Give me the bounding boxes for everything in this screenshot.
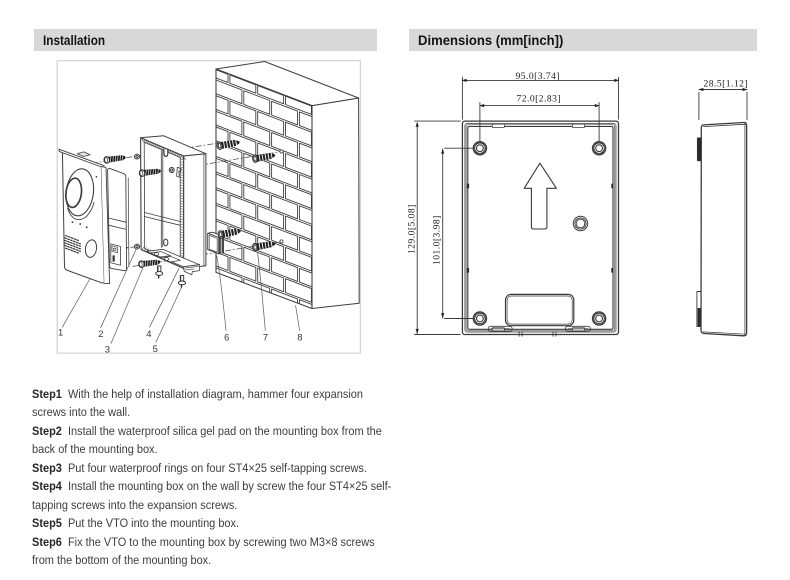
svg-text:101.0[3.98]: 101.0[3.98]: [432, 215, 443, 265]
svg-text:5: 5: [153, 343, 158, 354]
svg-text:1: 1: [58, 327, 63, 338]
svg-text:4: 4: [146, 328, 151, 339]
svg-text:2: 2: [98, 328, 103, 339]
svg-text:7: 7: [263, 332, 268, 343]
svg-text:28.5[1.12]: 28.5[1.12]: [704, 78, 748, 89]
svg-text:6: 6: [224, 332, 229, 343]
svg-text:8: 8: [297, 332, 302, 343]
svg-text:129.0[5.08]: 129.0[5.08]: [406, 204, 417, 254]
svg-text:3: 3: [105, 343, 110, 354]
svg-text:72.0[2.83]: 72.0[2.83]: [517, 94, 561, 105]
svg-text:95.0[3.74]: 95.0[3.74]: [516, 71, 560, 82]
